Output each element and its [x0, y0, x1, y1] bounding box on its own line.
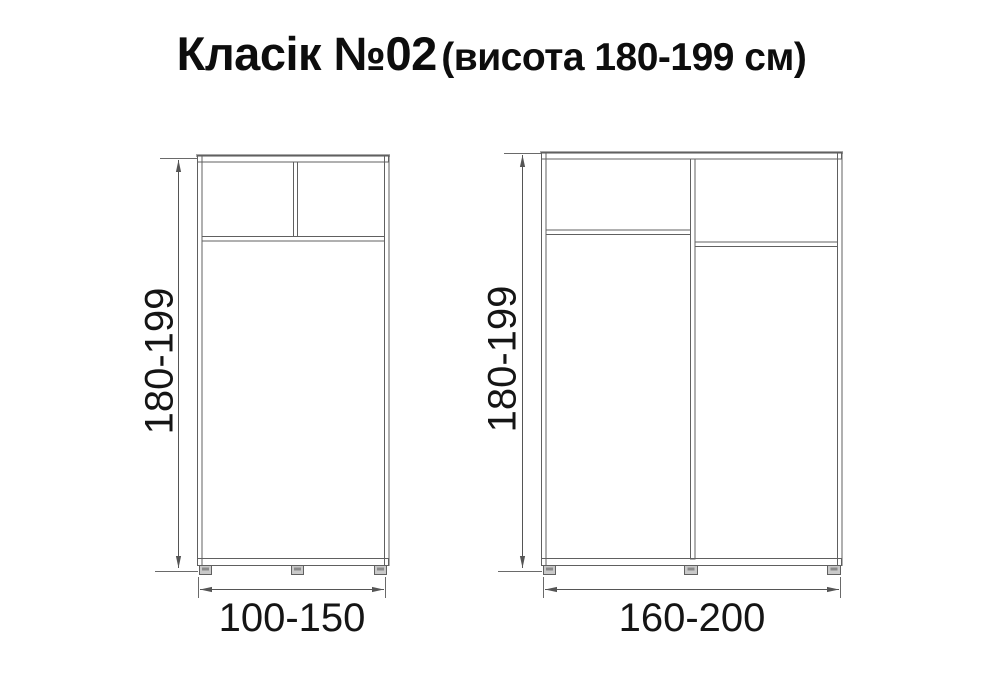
left-width-dimension	[199, 577, 386, 598]
right-wardrobe-right-shelf	[695, 242, 838, 247]
right-wardrobe-right-panel	[838, 153, 843, 566]
left-height-dimension-label: 180-199	[138, 288, 183, 435]
left-width-dimension-label: 100-150	[219, 596, 366, 641]
page: Класік №02 (висота 180-199 см)	[0, 0, 983, 700]
right-width-dimension	[544, 577, 841, 598]
left-wardrobe-right-panel	[385, 156, 390, 566]
right-wardrobe-drawing	[498, 153, 843, 599]
right-wardrobe-top-panel	[540, 153, 843, 160]
left-wardrobe-top-divider	[294, 162, 298, 237]
left-wardrobe-left-panel	[198, 156, 203, 566]
left-wardrobe-bottom-panel	[198, 559, 389, 566]
right-wardrobe-left-shelf	[546, 230, 691, 235]
right-wardrobe-middle-divider	[691, 159, 696, 559]
left-wardrobe-feet	[200, 566, 387, 575]
right-height-dimension-label: 180-199	[481, 286, 526, 433]
right-wardrobe-bottom-panel	[542, 559, 842, 566]
right-width-dimension-label: 160-200	[619, 596, 766, 641]
right-wardrobe-left-panel	[542, 153, 547, 566]
left-wardrobe-drawing	[155, 156, 390, 599]
right-wardrobe-feet	[544, 566, 841, 575]
left-wardrobe-shelf	[202, 237, 385, 242]
left-wardrobe-top-panel	[196, 156, 390, 163]
